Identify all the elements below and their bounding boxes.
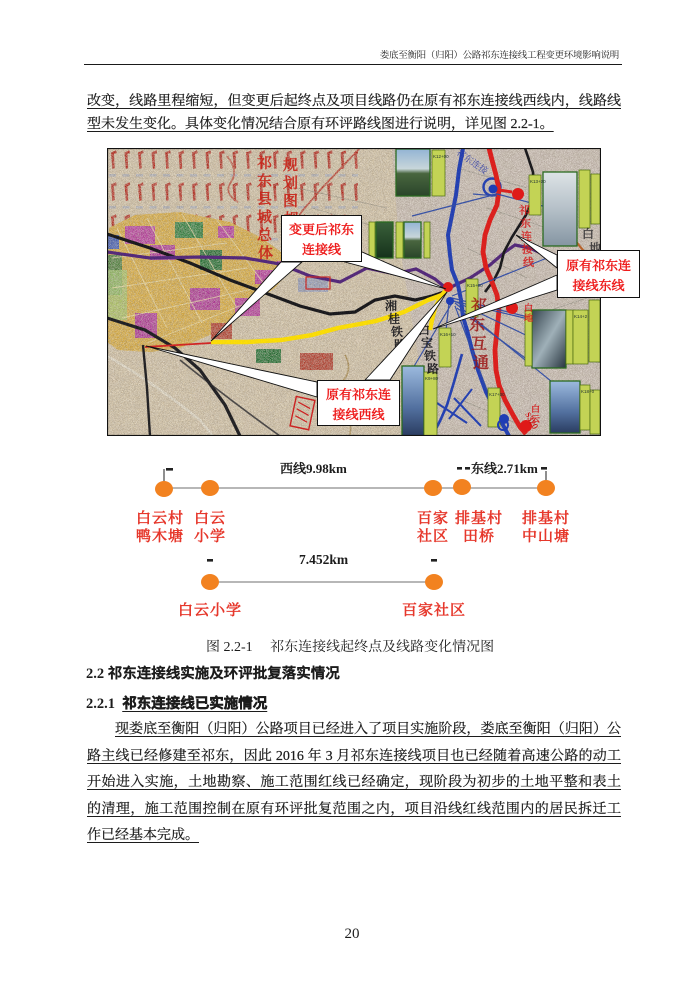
svg-text:K13+20: K13+20 [530,179,546,184]
svg-text:K15+00: K15+00 [467,283,483,288]
svg-text:体: 体 [258,242,273,263]
svg-text:K16+10: K16+10 [440,332,456,337]
svg-text:路: 路 [427,360,439,377]
svg-text:地: 地 [524,311,533,324]
svg-text:K18+0: K18+0 [581,389,595,394]
svg-text:通: 通 [473,350,489,373]
svg-text:K12+00: K12+00 [433,154,449,159]
svg-text:K14+2: K14+2 [574,314,588,319]
svg-text:K17+30: K17+30 [489,392,505,397]
svg-text:线: 线 [523,254,535,270]
svg-text:云: 云 [531,412,540,425]
